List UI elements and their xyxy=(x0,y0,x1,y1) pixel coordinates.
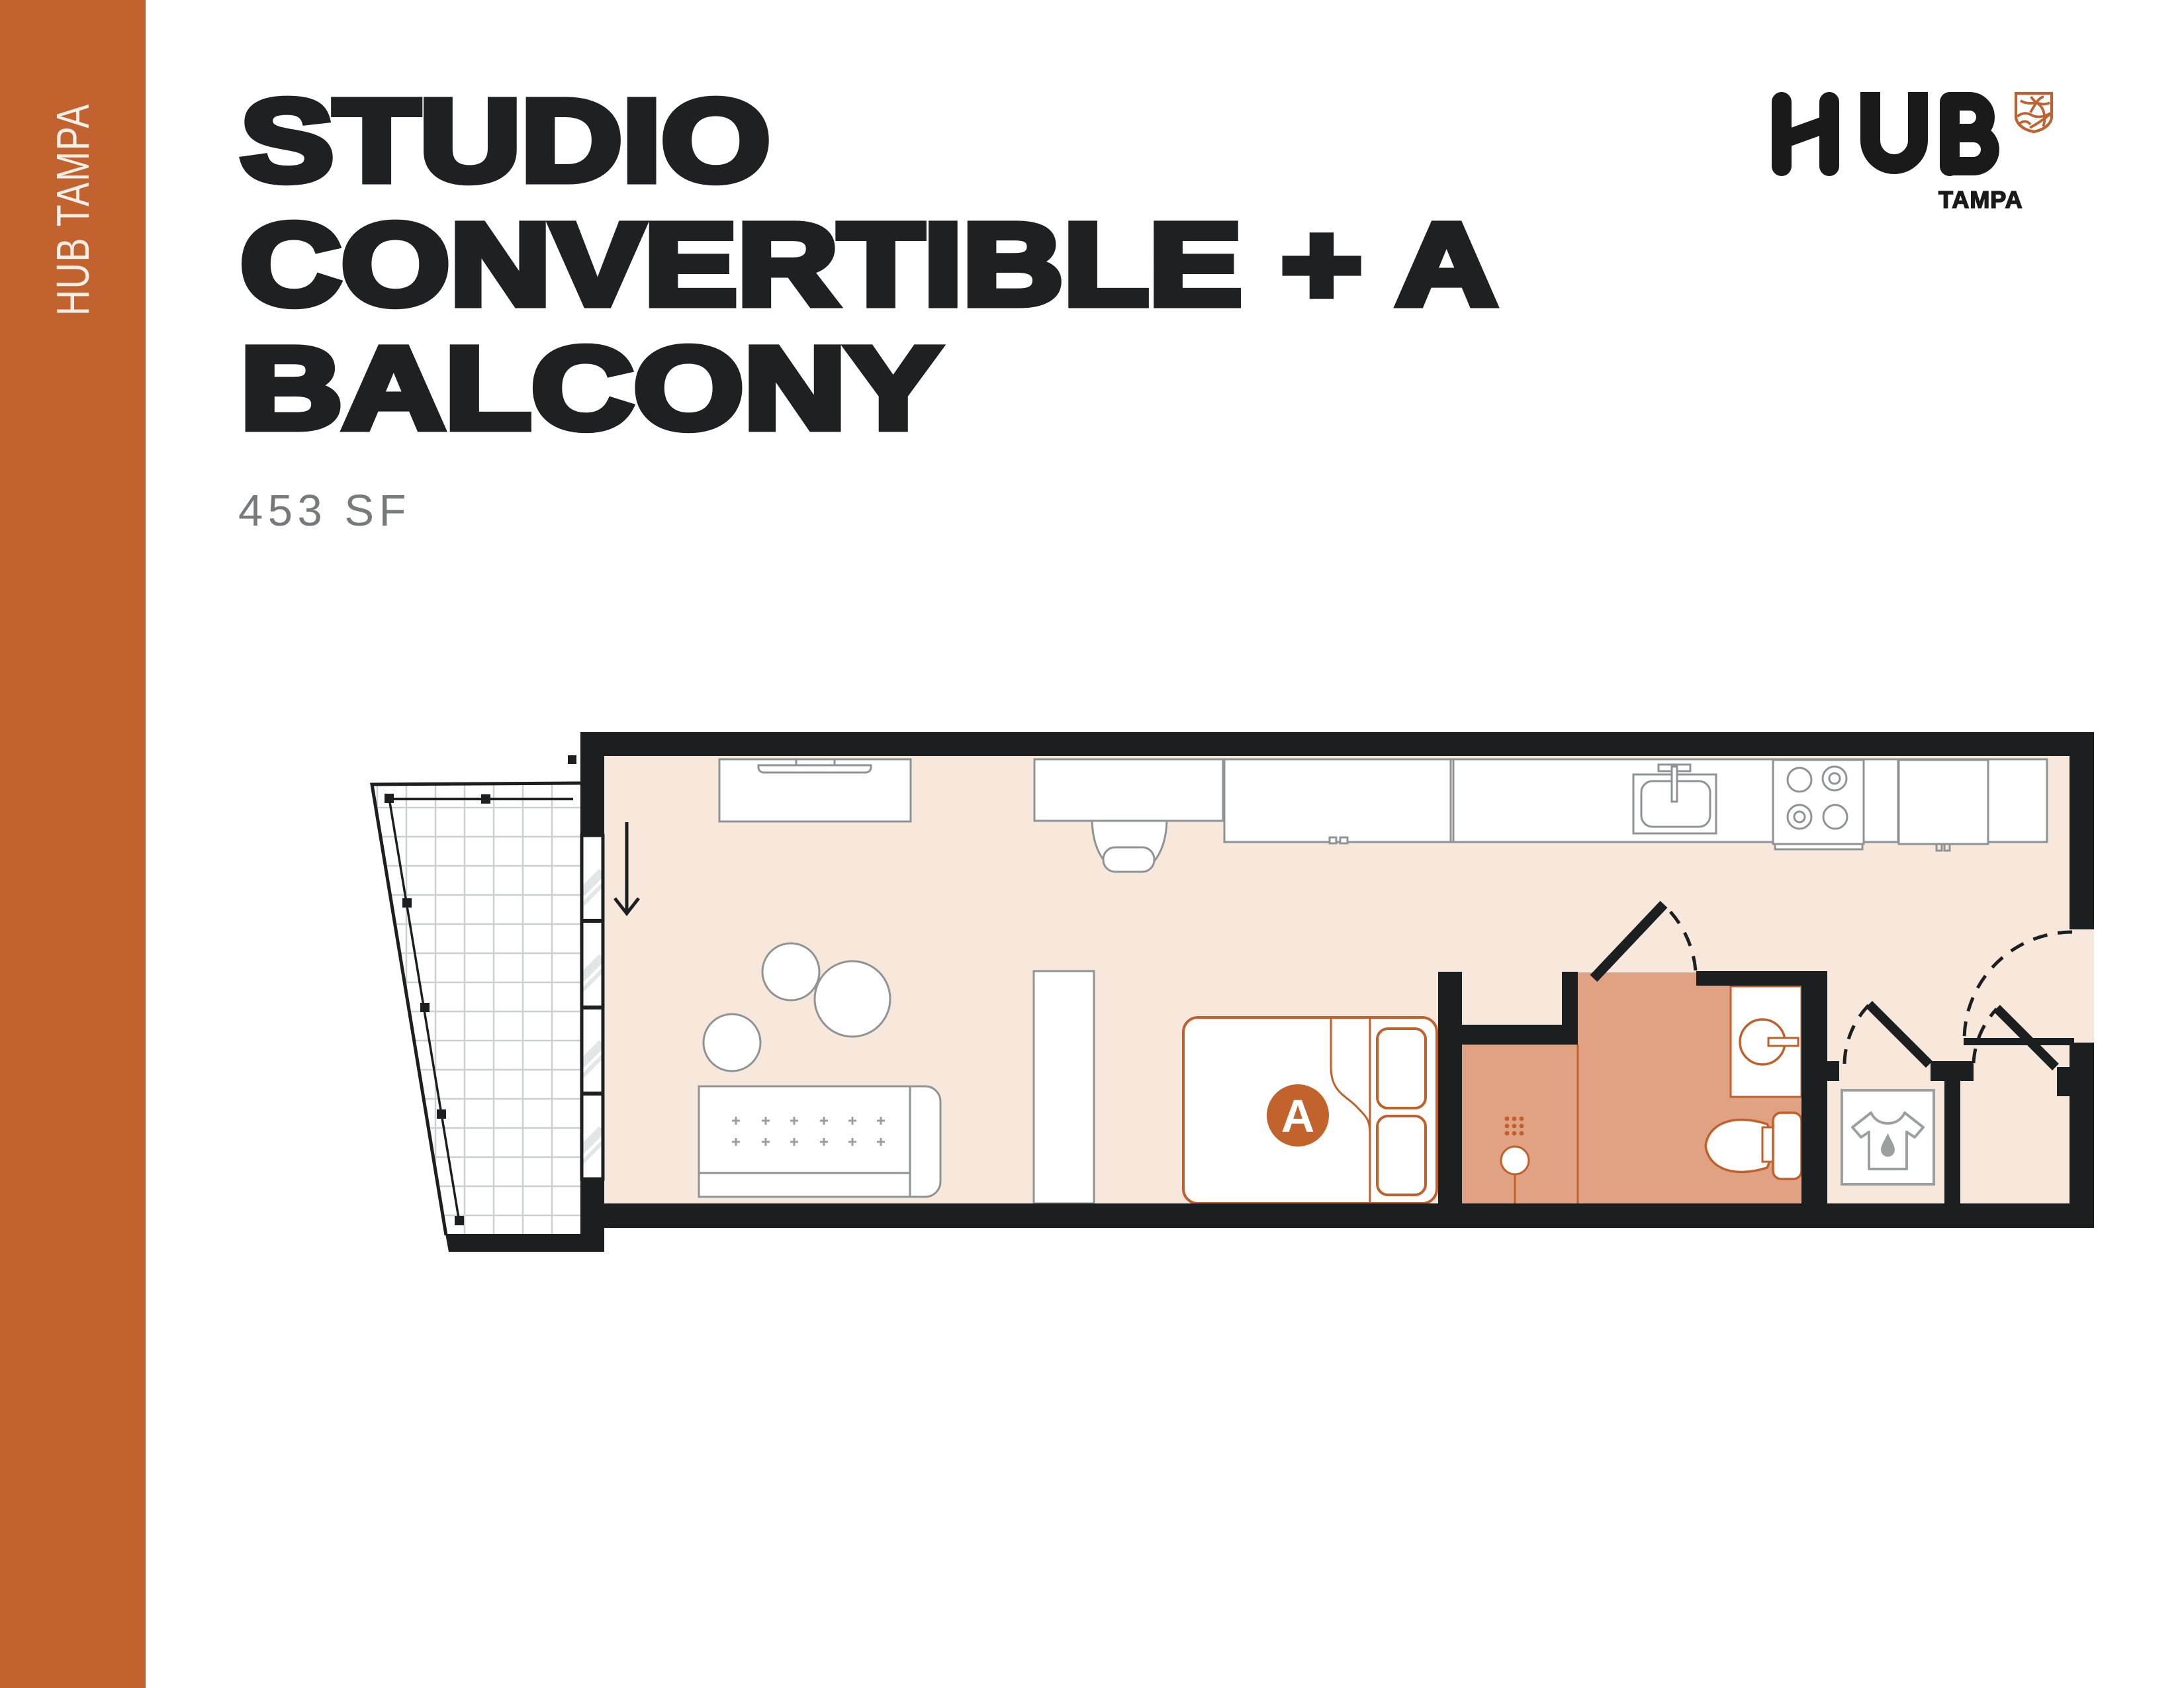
svg-text:HUB TAMPA: HUB TAMPA xyxy=(47,103,99,316)
svg-text:BALCONY: BALCONY xyxy=(240,324,940,453)
svg-text:A: A xyxy=(1281,1090,1315,1142)
svg-text:CONVERTIBLE + A: CONVERTIBLE + A xyxy=(240,200,1497,330)
svg-text:STUDIO: STUDIO xyxy=(240,76,770,206)
svg-text:TAMPA: TAMPA xyxy=(1938,186,2023,213)
svg-text:453 SF: 453 SF xyxy=(238,486,411,536)
